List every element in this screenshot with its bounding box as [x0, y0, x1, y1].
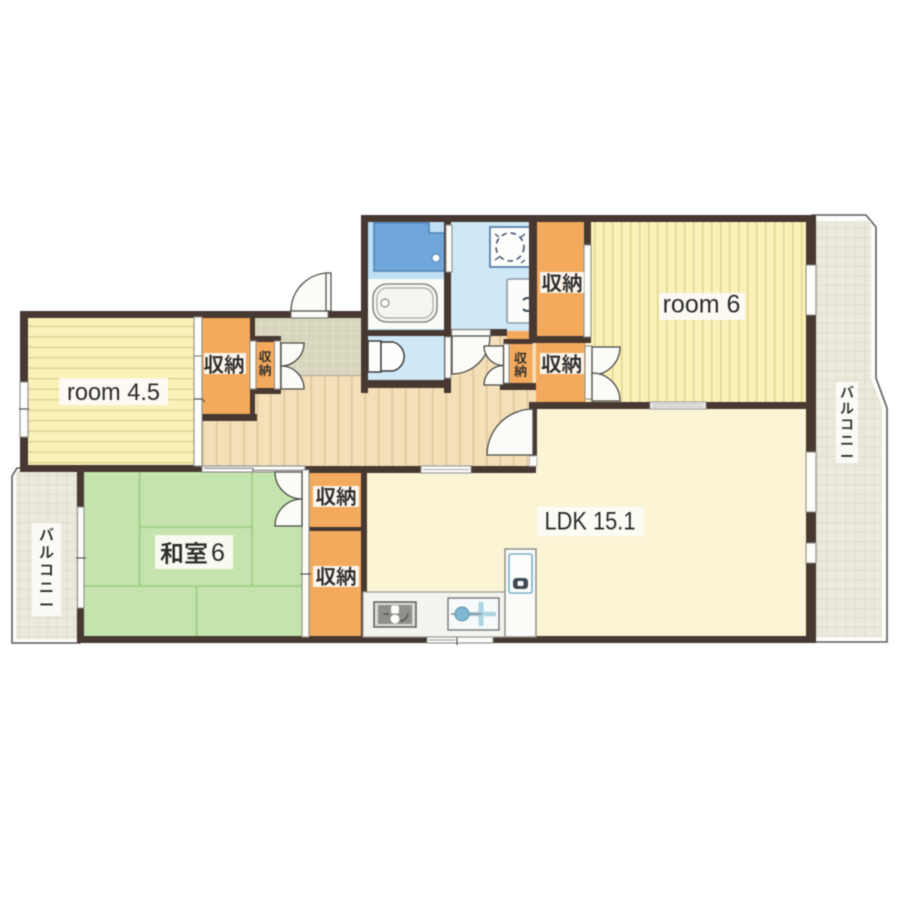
svg-text:room 4.5: room 4.5	[67, 379, 160, 406]
svg-text:LDK 15.1: LDK 15.1	[545, 508, 636, 536]
svg-text:room 6: room 6	[663, 291, 741, 319]
svg-text:6: 6	[211, 539, 225, 567]
